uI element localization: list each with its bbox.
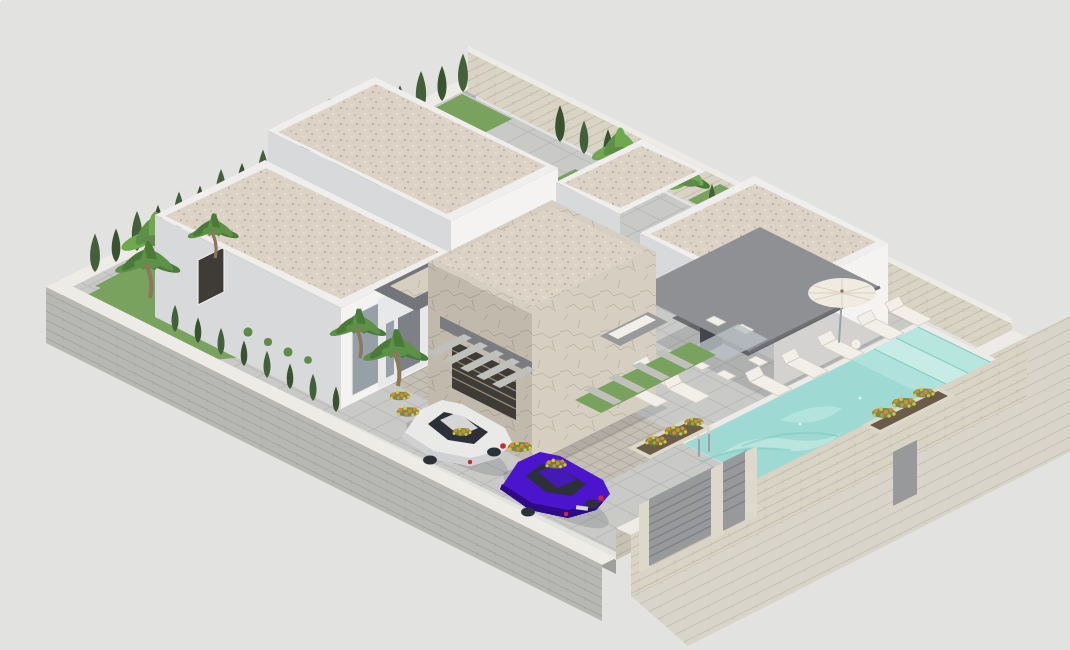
architectural-render: 3D isometric villa rendering Isometric 3… [0, 0, 1070, 650]
side-table [851, 339, 861, 349]
villa-scene-canvas: 3D isometric villa rendering Isometric 3… [0, 0, 1070, 650]
taillight [598, 495, 604, 501]
taillight [564, 512, 568, 516]
taillight [468, 460, 472, 464]
taillight [500, 443, 506, 449]
